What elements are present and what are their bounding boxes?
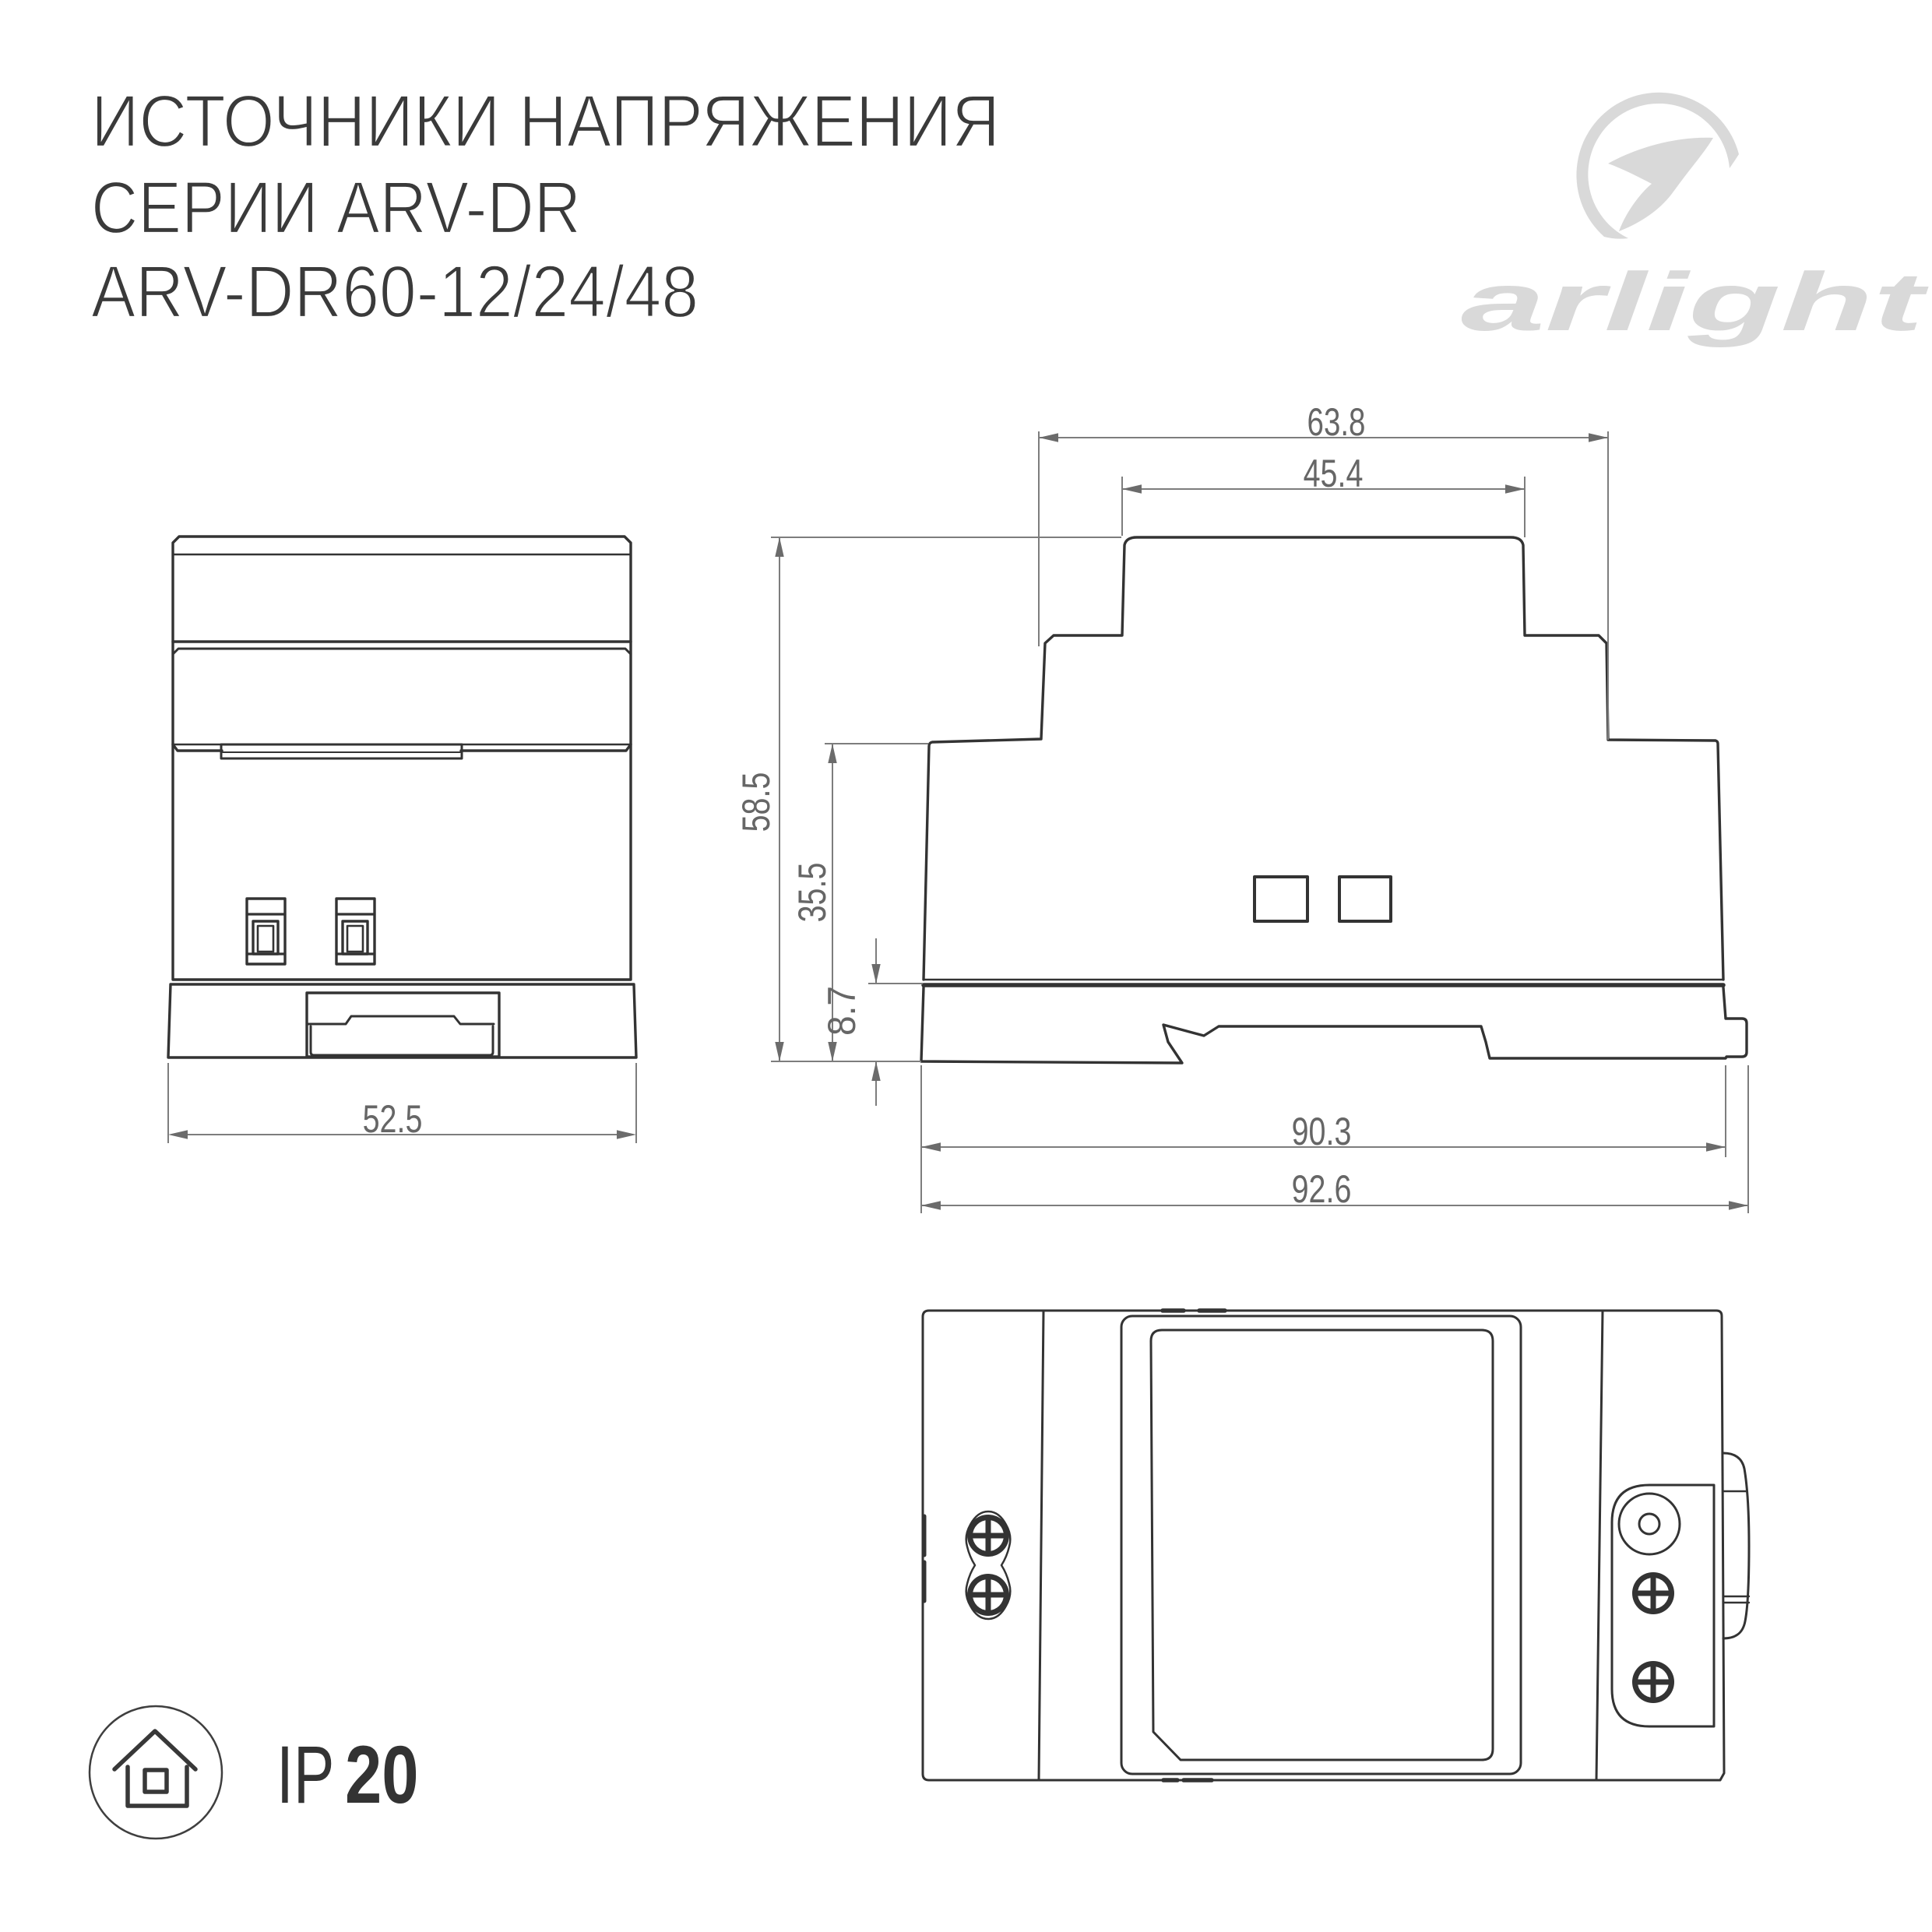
svg-text:52.5: 52.5: [363, 1097, 423, 1142]
svg-text:63.8: 63.8: [1307, 401, 1366, 444]
svg-text:СЕРИИ ARV-DR: СЕРИИ ARV-DR: [91, 167, 581, 249]
svg-text:45.4: 45.4: [1304, 452, 1364, 496]
svg-text:ИСТОЧНИКИ НАПРЯЖЕНИЯ: ИСТОЧНИКИ НАПРЯЖЕНИЯ: [91, 80, 1000, 163]
svg-text:58.5: 58.5: [734, 772, 779, 832]
svg-text:arlight: arlight: [1461, 256, 1929, 348]
svg-text:ARV-DR60-12/24/48: ARV-DR60-12/24/48: [91, 251, 699, 333]
svg-text:90.3: 90.3: [1292, 1110, 1352, 1154]
svg-text:IP: IP: [276, 1729, 334, 1821]
svg-text:92.6: 92.6: [1292, 1167, 1352, 1212]
svg-text:35.5: 35.5: [790, 863, 835, 923]
svg-text:20: 20: [345, 1730, 419, 1821]
svg-text:8.7: 8.7: [821, 986, 864, 1036]
